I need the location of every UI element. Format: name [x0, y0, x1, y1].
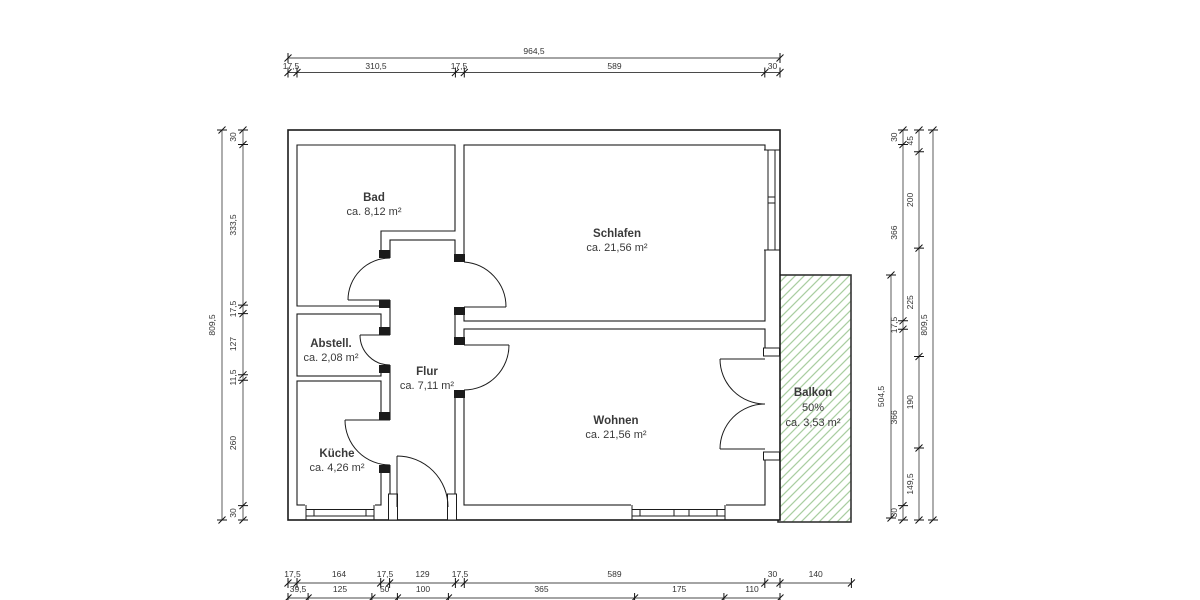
room-area-balkon: ca. 3,53 m² — [785, 417, 840, 429]
dim-label: 809,5 — [207, 314, 217, 336]
dim-ticks — [285, 593, 784, 600]
dim-label: 260 — [228, 436, 238, 450]
dim-label: 127 — [228, 337, 238, 351]
dim-label: 17,5 — [452, 569, 469, 579]
room-name-kueche: Küche — [319, 448, 354, 460]
dim-label: 17,5 — [284, 569, 301, 579]
dim-label: 333,5 — [228, 214, 238, 236]
dim-label: 164 — [332, 569, 346, 579]
dim-label: 17,5 — [451, 61, 468, 71]
dim-label: 17,5 — [283, 61, 300, 71]
dim-label: 17,5 — [889, 316, 899, 333]
room-name-balkon: Balkon — [794, 387, 832, 399]
room-name-abstell: Abstell. — [310, 338, 352, 350]
dim-label: 30 — [228, 508, 238, 518]
room-kueche-interior — [297, 381, 381, 505]
room-name-flur: Flur — [416, 366, 438, 378]
dim-label: 30 — [228, 132, 238, 142]
dim-label: 45 — [905, 136, 915, 146]
room-area-flur: ca. 7,11 m² — [400, 380, 455, 392]
room-name-wohnen: Wohnen — [593, 415, 638, 427]
room-name-schlafen: Schlafen — [593, 228, 641, 240]
dim-label: 30 — [768, 61, 778, 71]
room-area-wohnen: ca. 21,56 m² — [585, 429, 646, 441]
room-area-kueche: ca. 4,26 m² — [309, 462, 364, 474]
room-area-bad: ca. 8,12 m² — [346, 206, 401, 218]
room-share-balkon: 50% — [802, 402, 824, 414]
dim-label: 175 — [672, 584, 686, 594]
dim-label: 30 — [889, 508, 899, 518]
dim-label: 809,5 — [919, 314, 929, 336]
dim-label: 50 — [380, 584, 390, 594]
room-area-schlafen: ca. 21,56 m² — [586, 242, 647, 254]
dim-label: 129 — [415, 569, 429, 579]
dim-label: 190 — [905, 395, 915, 409]
dim-label: 30 — [889, 132, 899, 142]
dim-label: 30 — [768, 569, 778, 579]
dim-label: 365 — [534, 584, 548, 594]
dim-label: 589 — [607, 61, 621, 71]
dim-label: 200 — [905, 193, 915, 207]
dim-label: 17,5 — [228, 300, 238, 317]
dim-label: 964,5 — [523, 46, 545, 56]
dim-label: 589 — [607, 569, 621, 579]
dim-label: 366 — [889, 410, 899, 424]
dim-label: 17,5 — [377, 569, 394, 579]
dim-label: 310,5 — [365, 61, 387, 71]
dim-label: 125 — [333, 584, 347, 594]
dim-label: 39,5 — [290, 584, 307, 594]
room-area-abstell: ca. 2,08 m² — [303, 352, 358, 364]
dim-label: 11,5 — [228, 369, 238, 385]
dim-label: 140 — [809, 569, 823, 579]
dim-label: 504,5 — [876, 386, 886, 408]
dim-label: 149,5 — [905, 473, 915, 495]
room-name-bad: Bad — [363, 192, 385, 204]
dim-label: 100 — [416, 584, 430, 594]
dim-label: 366 — [889, 225, 899, 239]
dim-label: 225 — [905, 295, 915, 309]
dim-label: 110 — [745, 584, 759, 594]
floor-plan-canvas: Bad ca. 8,12 m² Schlafen ca. 21,56 m² Ab… — [0, 0, 1200, 600]
floor-plan: Bad ca. 8,12 m² Schlafen ca. 21,56 m² Ab… — [0, 0, 1200, 600]
